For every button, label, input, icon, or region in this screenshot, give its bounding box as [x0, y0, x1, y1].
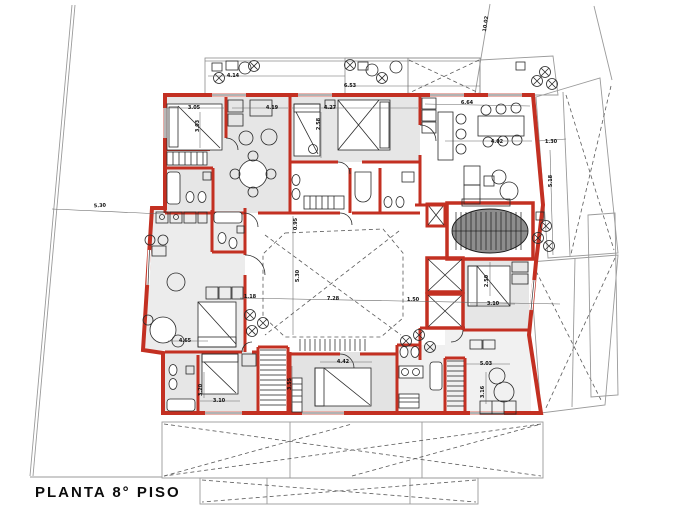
- floor-plan-sheet: 4.146.5310.023.053.034.194.272.586.644.0…: [0, 0, 681, 517]
- dimension-label: 4.14: [227, 73, 240, 79]
- dimension-label: 10.02: [482, 15, 490, 32]
- dimension-label: 5.03: [480, 361, 493, 367]
- floor-plan-drawing: 4.146.5310.023.053.034.194.272.586.644.0…: [0, 0, 681, 517]
- dimension-label: 3.20: [198, 383, 204, 396]
- wardrobe-icon: [167, 152, 207, 165]
- dimension-label: 3.16: [480, 385, 486, 398]
- dimension-label: 4.27: [324, 105, 337, 111]
- balcony-furniture-icons: [212, 60, 558, 90]
- dimension-label: 0.95: [293, 217, 299, 230]
- dimension-label: 1.50: [407, 297, 420, 303]
- dimension-label: 4.65: [179, 338, 192, 344]
- bed-icon: [294, 100, 390, 156]
- dimension-label: 4.42: [337, 359, 350, 365]
- dimension-label: 4.19: [266, 105, 279, 111]
- dimension-label: 4.02: [491, 139, 504, 145]
- dimension-label: 2.50: [484, 274, 490, 287]
- drawing-title: PLANTA 8° PISO: [35, 484, 181, 501]
- dimension-label: 1.30: [545, 139, 558, 145]
- dimension-label: 5.30: [295, 269, 301, 282]
- dimension-label: 7.28: [327, 296, 340, 302]
- dimension-label: 2.58: [316, 117, 322, 130]
- dimension-label: 3.10: [487, 301, 500, 307]
- dimension-label: 1.18: [244, 294, 257, 300]
- dimension-label: 6.64: [461, 100, 474, 106]
- top-balcony: [205, 56, 558, 95]
- dimension-label: 3.05: [188, 105, 201, 111]
- dimension-label: 6.53: [344, 83, 357, 89]
- dimension-label: 3.55: [287, 377, 293, 390]
- bed-icon: [198, 302, 236, 347]
- dimension-label: 3.03: [195, 119, 201, 132]
- dimension-label: 5.18: [548, 174, 554, 187]
- dimension-label: 5.30: [94, 203, 107, 210]
- bottom-terraces: [162, 422, 543, 504]
- dimension-label: 3.10: [213, 398, 226, 404]
